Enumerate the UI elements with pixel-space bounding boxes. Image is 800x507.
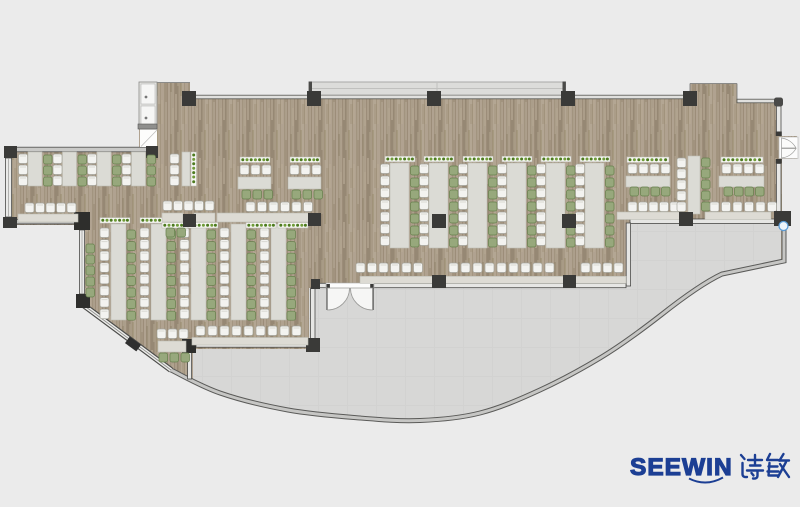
svg-text:SEEWIN: SEEWIN (630, 454, 733, 481)
